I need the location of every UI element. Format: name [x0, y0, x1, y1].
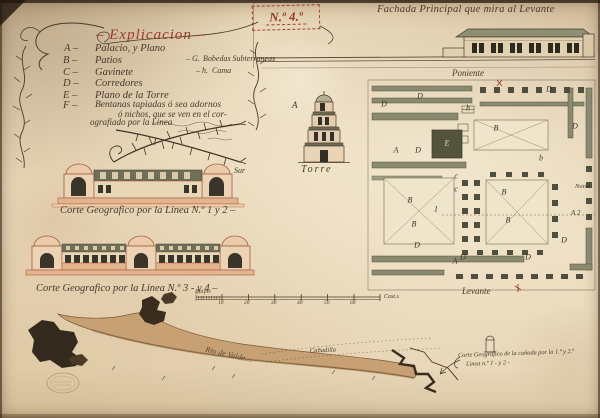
section-1-sur-label: Sur — [234, 166, 245, 175]
tower-marker: A — [292, 100, 298, 110]
bottom-note-line2: Linea n.º 1 - y 2 - — [466, 359, 510, 368]
section-1-drawing — [50, 154, 246, 210]
collection-stamp — [44, 370, 82, 396]
manuscript-sheet: N.º 4.º Fachada Principal que mira al Le… — [0, 0, 600, 418]
section-2-drawing — [24, 230, 256, 280]
section-1-caption: Corte Geografico por la Linea N.º 1 y 2 … — [60, 205, 235, 216]
sheet-number: N.º 4.º — [266, 8, 306, 25]
legend-note-h-text: Cama — [212, 66, 231, 75]
river-path-label: Cañadilla — [310, 347, 336, 355]
facade-elevation-drawing — [250, 24, 598, 82]
plan-poniente-label: Poniente — [452, 68, 484, 78]
legend-note-h-letter: – h. — [196, 66, 208, 75]
paper-bottom-edge — [0, 414, 600, 418]
paper-left-edge — [0, 0, 2, 418]
plan-section-line-mark: A 2 — [571, 209, 580, 217]
legend-right-vine — [244, 38, 272, 142]
legend-note-g-letter: – G. — [186, 54, 200, 63]
floor-plan-drawing — [362, 78, 598, 294]
tower-elevation-drawing — [292, 88, 356, 172]
tower-label: Torre — [301, 164, 333, 175]
river-landscape-drawing — [12, 290, 488, 396]
paper-stain — [500, 310, 600, 410]
facade-title: Fachada Principal que mira al Levante — [377, 4, 555, 15]
plan-norte-label: Norte — [575, 183, 590, 190]
paper-top-edge — [0, 0, 600, 3]
note-arrow — [436, 356, 462, 378]
